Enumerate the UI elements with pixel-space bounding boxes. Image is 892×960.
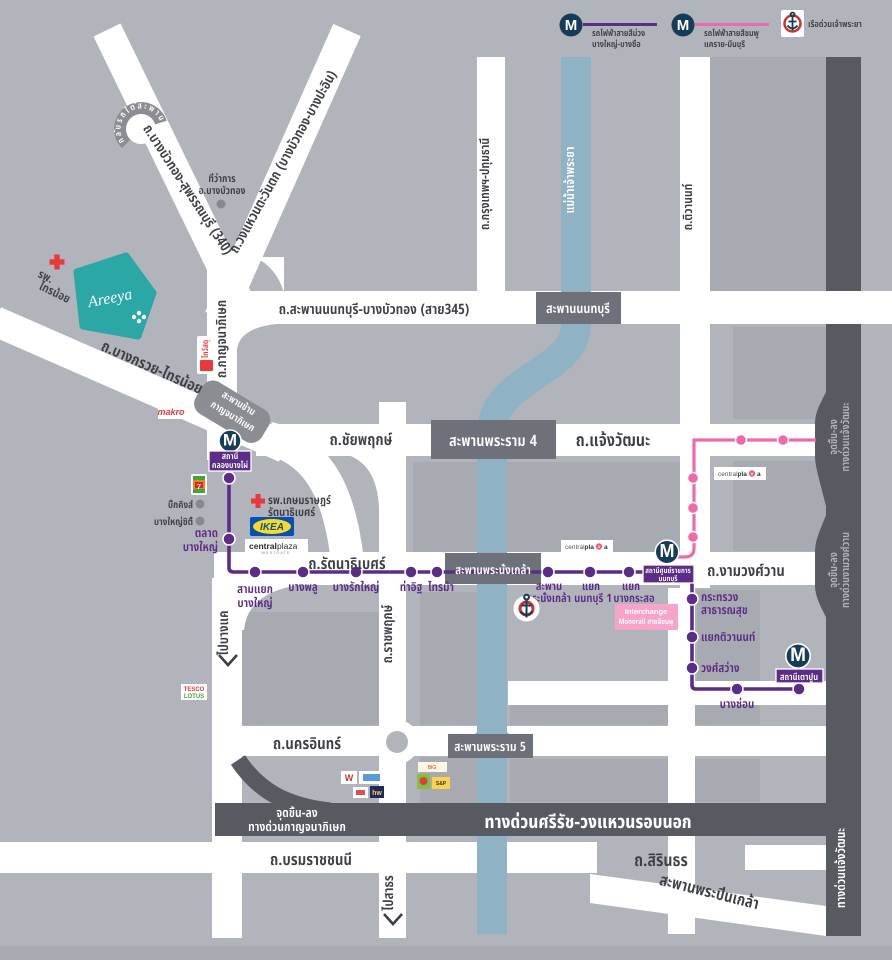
svg-text:M: M xyxy=(223,431,237,450)
svg-text:IKEA: IKEA xyxy=(260,522,284,533)
svg-text:M: M xyxy=(565,17,578,34)
svg-text:a: a xyxy=(604,544,608,551)
svg-text:W: W xyxy=(345,773,354,783)
svg-text:hw: hw xyxy=(372,790,382,797)
svg-text:×: × xyxy=(597,545,601,551)
svg-text:makro: makro xyxy=(157,407,185,417)
svg-text:M: M xyxy=(660,541,675,561)
svg-text:S&P: S&P xyxy=(436,781,447,787)
svg-text:BIG: BIG xyxy=(428,765,437,771)
svg-text:M: M xyxy=(677,17,690,34)
svg-text:LOTUS: LOTUS xyxy=(184,694,204,700)
svg-text:central: central xyxy=(249,541,277,551)
svg-text:TESCO: TESCO xyxy=(184,687,205,693)
svg-text:7: 7 xyxy=(197,484,201,491)
svg-text:centralpla: centralpla xyxy=(565,544,594,551)
svg-text:plaza: plaza xyxy=(277,541,298,551)
svg-text:WESTGATE: WESTGATE xyxy=(261,551,290,555)
svg-text:×: × xyxy=(750,472,754,478)
svg-text:Interchange: Interchange xyxy=(625,607,668,616)
svg-text:a: a xyxy=(757,471,761,478)
svg-text:centralpla: centralpla xyxy=(718,471,747,478)
svg-text:M: M xyxy=(790,645,806,666)
